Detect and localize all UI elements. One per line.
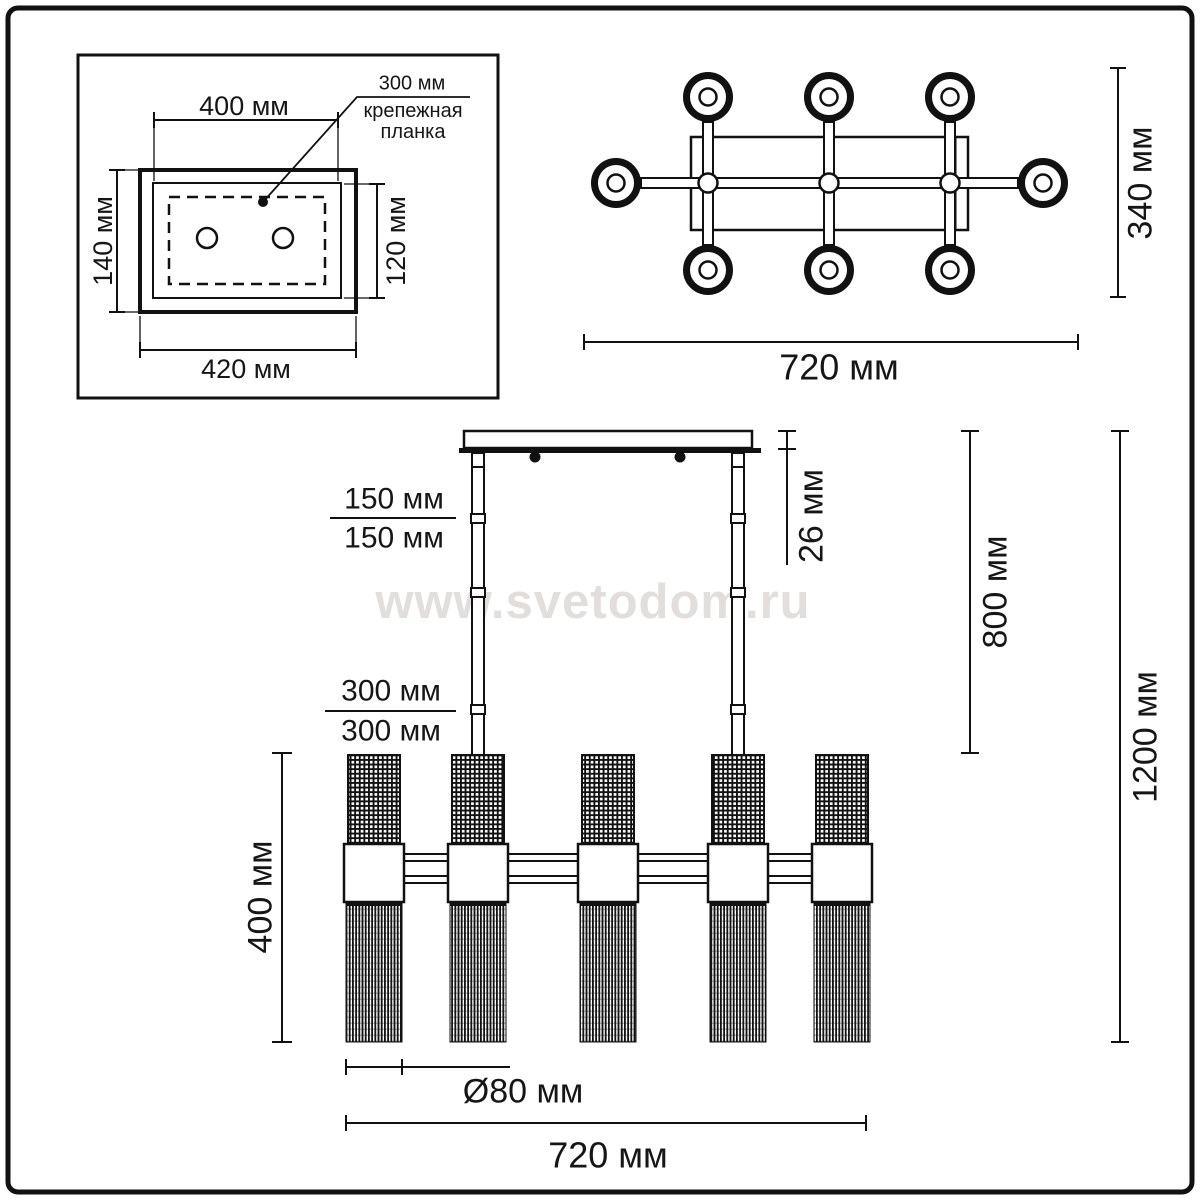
suspension-rod-right: [731, 453, 745, 755]
shade-column: [708, 755, 768, 1042]
arm-junction: [820, 174, 839, 193]
inset-callout-value: 300 мм: [379, 74, 445, 95]
mount-hole-left: [197, 228, 217, 248]
shade-column: [578, 755, 638, 1042]
inset-dim-140-label: 140 мм: [89, 196, 117, 286]
chandelier-top-view: [584, 68, 1126, 350]
shade-column: [344, 755, 404, 1042]
dim-140-extensions: [125, 170, 139, 312]
shade-column: [812, 755, 872, 1042]
mount-hole-right: [273, 228, 293, 248]
inset-dim-120-label: 120 мм: [382, 196, 410, 286]
arm-junction: [941, 174, 960, 193]
inset-dim-400-label: 400 мм: [199, 92, 289, 120]
dim-720-bottom-label: 720 мм: [548, 1136, 668, 1173]
rod-segment-300a-label: 300 мм: [341, 675, 441, 706]
dimension-drawing-page: www.svetodom.ru: [0, 0, 1200, 1200]
canopy-plate: [459, 448, 761, 453]
dim-420-extensions: [140, 316, 356, 342]
dim-400-extensions: [154, 128, 338, 181]
dim-720-bottom-line: [346, 1115, 866, 1131]
arm-junction: [699, 174, 718, 193]
mount-bar-dashed: [169, 197, 325, 284]
canopy-screw: [675, 452, 686, 463]
ceiling-canopy: [464, 431, 752, 448]
dim-26-label: 26 мм: [794, 469, 829, 563]
rod-segment-300b-label: 300 мм: [341, 715, 441, 746]
diagram-linework: [0, 0, 1200, 1200]
mount-plate-inner: [153, 183, 341, 298]
rod-segment-150b-label: 150 мм: [344, 522, 444, 553]
dim-1200-label: 1200 мм: [1128, 671, 1163, 803]
shade-column: [448, 755, 508, 1042]
rod-segment-150a-label: 150 мм: [344, 483, 444, 514]
inset-dim-420-label: 420 мм: [201, 355, 291, 383]
canopy-screw: [530, 452, 541, 463]
dim-800-label: 800 мм: [978, 536, 1013, 649]
inset-callout-label: крепежная планка: [363, 101, 462, 143]
dim-400-shade-label: 400 мм: [243, 841, 278, 954]
dim-d80-label: Ø80 мм: [463, 1074, 583, 1109]
top-view-dim-720-label: 720 мм: [779, 348, 899, 385]
top-view-dim-340-label: 340 мм: [1123, 127, 1158, 240]
suspension-rod-left: [471, 453, 485, 755]
mount-plate-outer: [140, 170, 356, 312]
